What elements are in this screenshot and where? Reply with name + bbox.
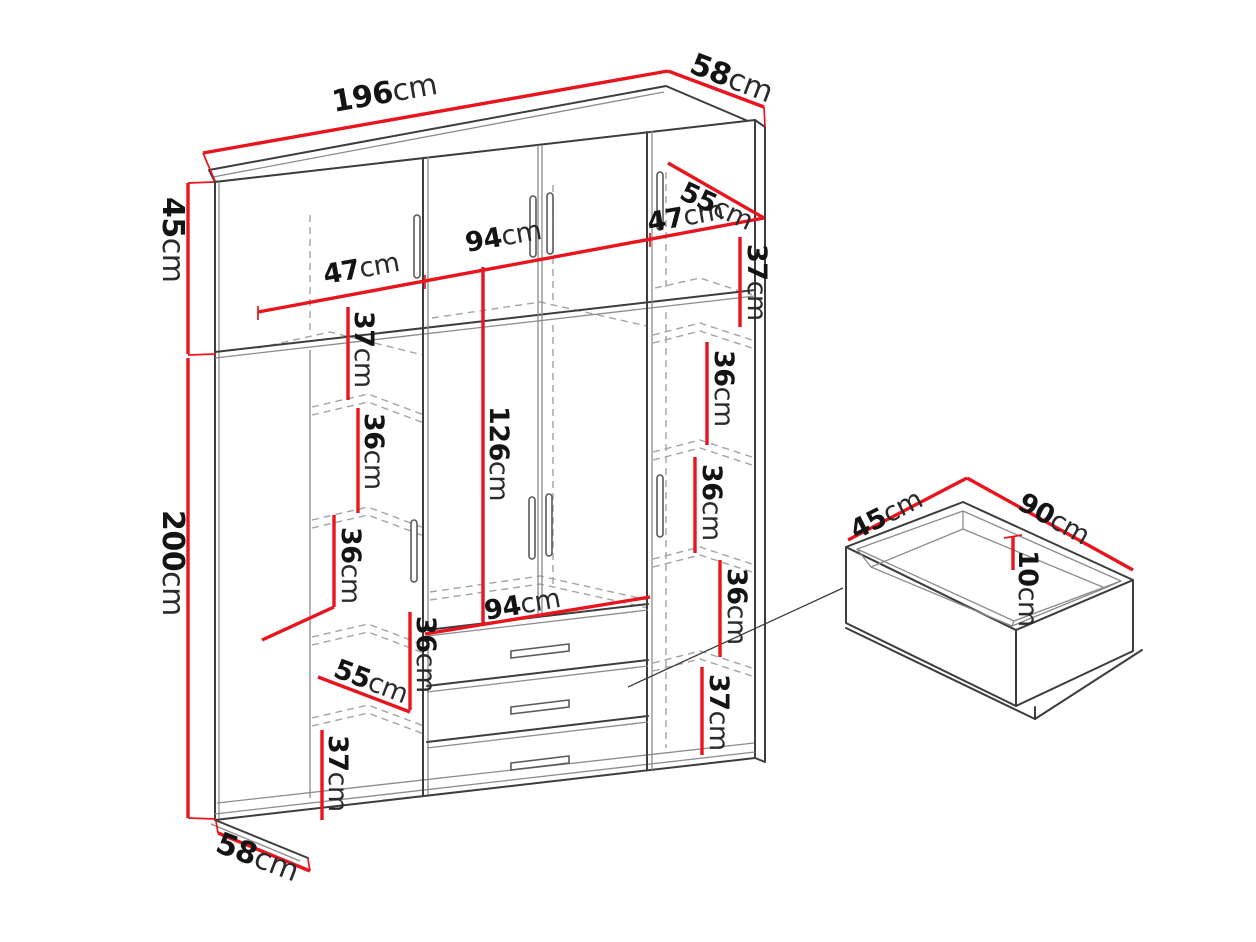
- dim-left-shelf4: 36cm: [410, 616, 441, 693]
- dim-left-shelf5: 37cm: [322, 735, 353, 812]
- dim-total-width: 196cm: [329, 67, 439, 120]
- dim-left-shelf1: 37cm: [348, 311, 379, 388]
- upper-left-door-handle: [414, 215, 420, 278]
- wardrobe-dimension-diagram: 196cm 58cm 45cm 200cm 58cm 47cm 94cm 47c…: [0, 0, 1256, 942]
- drawer-detail: [846, 502, 1142, 719]
- dim-drawer-inner-height: 10cm: [1012, 550, 1043, 627]
- dim-left-shelf2: 36cm: [358, 413, 389, 490]
- dim-right-shelf5: 37cm: [703, 674, 734, 751]
- dim-base-depth: 58cm: [211, 826, 303, 889]
- main-mid-right-handle: [546, 494, 552, 556]
- main-right-door-handle: [657, 475, 663, 537]
- dim-right-shelf1: 37cm: [741, 244, 772, 321]
- dim-right-shelf2: 36cm: [708, 350, 739, 427]
- dim-hanging-height: 126cm: [483, 406, 514, 501]
- main-left-door-handle: [411, 520, 417, 582]
- dim-left-shelf3: 36cm: [335, 527, 366, 604]
- dim-right-shelf3: 36cm: [696, 464, 727, 541]
- dim-main-height: 200cm: [155, 510, 190, 616]
- upper-mid-right-handle: [547, 193, 553, 254]
- dim-right-shelf4: 36cm: [721, 568, 752, 645]
- main-mid-left-handle: [529, 497, 535, 559]
- dim-upper-height: 45cm: [155, 197, 190, 282]
- diagram-svg: 196cm 58cm 45cm 200cm 58cm 47cm 94cm 47c…: [0, 0, 1256, 942]
